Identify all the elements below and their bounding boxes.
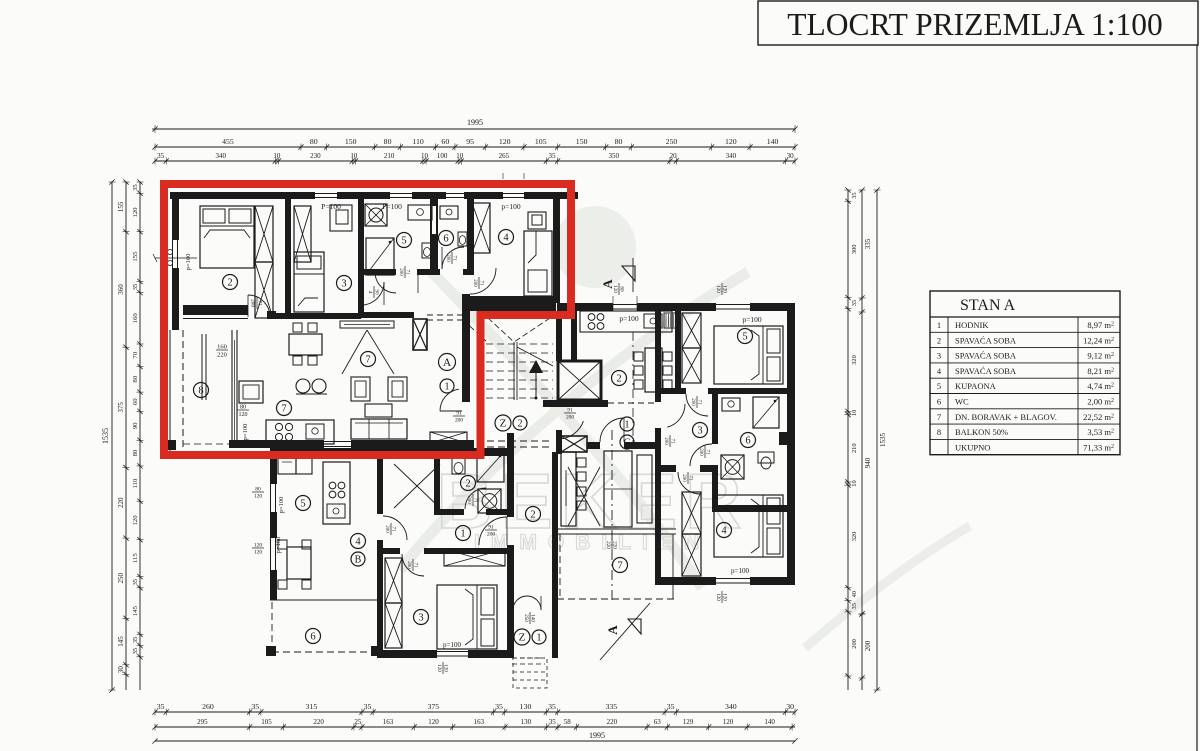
svg-text:150: 150 xyxy=(345,137,357,146)
svg-text:Z: Z xyxy=(500,418,507,430)
svg-text:320: 320 xyxy=(851,355,858,365)
svg-text:250: 250 xyxy=(523,614,529,622)
svg-text:5: 5 xyxy=(742,332,747,343)
svg-text:320: 320 xyxy=(851,532,858,542)
svg-text:220: 220 xyxy=(607,718,618,726)
svg-text:SPAVAĆA SOBA: SPAVAĆA SOBA xyxy=(955,351,1017,361)
svg-text:80: 80 xyxy=(310,137,318,146)
svg-text:200: 200 xyxy=(566,414,574,420)
svg-text:10: 10 xyxy=(350,152,358,160)
svg-text:140: 140 xyxy=(764,718,775,726)
svg-text:60: 60 xyxy=(132,398,139,405)
svg-text:35: 35 xyxy=(851,192,858,198)
svg-text:145: 145 xyxy=(117,636,125,647)
svg-text:200: 200 xyxy=(851,639,858,649)
svg-text:8: 8 xyxy=(937,427,941,437)
svg-text:160: 160 xyxy=(132,313,139,324)
svg-text:SPAVAĆA SOBA: SPAVAĆA SOBA xyxy=(955,366,1017,376)
svg-text:8,21 m2: 8,21 m2 xyxy=(1087,366,1114,376)
svg-text:71,33 m2: 71,33 m2 xyxy=(1083,442,1114,452)
svg-text:200: 200 xyxy=(445,254,450,262)
svg-text:230: 230 xyxy=(310,152,321,160)
svg-text:7: 7 xyxy=(281,404,286,415)
svg-text:129: 129 xyxy=(683,718,694,726)
svg-text:1535: 1535 xyxy=(101,428,110,444)
svg-text:P=100: P=100 xyxy=(382,202,402,211)
svg-text:2,00 m2: 2,00 m2 xyxy=(1087,397,1114,407)
svg-text:STAN A: STAN A xyxy=(960,297,1016,314)
svg-text:1995: 1995 xyxy=(467,118,483,127)
svg-text:5: 5 xyxy=(401,236,406,247)
svg-text:95: 95 xyxy=(466,137,474,146)
svg-text:58: 58 xyxy=(564,718,572,726)
svg-text:4,74 m2: 4,74 m2 xyxy=(1087,381,1114,391)
svg-text:35: 35 xyxy=(132,184,139,191)
svg-text:300: 300 xyxy=(851,245,858,255)
svg-text:35: 35 xyxy=(132,283,139,290)
svg-text:Z: Z xyxy=(519,632,526,644)
svg-text:150: 150 xyxy=(576,137,588,146)
svg-text:120: 120 xyxy=(725,137,737,146)
svg-text:6: 6 xyxy=(937,397,941,407)
svg-text:120: 120 xyxy=(428,718,439,726)
svg-text:120: 120 xyxy=(239,412,248,418)
svg-text:340: 340 xyxy=(216,152,227,160)
svg-text:120: 120 xyxy=(254,494,263,500)
svg-text:1: 1 xyxy=(937,320,941,330)
svg-text:115: 115 xyxy=(132,553,139,563)
svg-text:p=100: p=100 xyxy=(731,567,749,575)
svg-text:105: 105 xyxy=(261,718,272,726)
svg-text:35: 35 xyxy=(364,702,372,711)
svg-text:KUPAONA: KUPAONA xyxy=(955,381,997,391)
svg-text:p=100: p=100 xyxy=(443,641,461,649)
svg-text:7: 7 xyxy=(365,355,370,366)
svg-text:220: 220 xyxy=(217,352,227,359)
svg-text:7: 7 xyxy=(937,412,941,422)
svg-text:35: 35 xyxy=(157,702,165,711)
svg-text:340: 340 xyxy=(726,152,737,160)
svg-text:350: 350 xyxy=(608,152,619,160)
svg-text:3,53 m2: 3,53 m2 xyxy=(1087,427,1114,437)
svg-text:35: 35 xyxy=(851,300,858,306)
svg-text:200: 200 xyxy=(690,398,695,406)
svg-text:8,97 m2: 8,97 m2 xyxy=(1087,320,1114,330)
svg-text:120: 120 xyxy=(132,207,139,218)
svg-text:80: 80 xyxy=(132,449,139,456)
svg-text:20: 20 xyxy=(670,152,678,160)
svg-text:105: 105 xyxy=(535,137,547,146)
svg-text:35: 35 xyxy=(251,702,259,711)
svg-text:200: 200 xyxy=(455,417,463,423)
svg-text:35: 35 xyxy=(548,702,556,711)
svg-text:2: 2 xyxy=(530,510,535,521)
svg-text:80: 80 xyxy=(384,137,392,146)
svg-text:120: 120 xyxy=(132,515,139,526)
svg-text:155: 155 xyxy=(117,201,125,212)
svg-text:265: 265 xyxy=(499,152,510,160)
svg-text:35: 35 xyxy=(132,636,139,643)
svg-text:160: 160 xyxy=(217,344,227,351)
svg-text:2: 2 xyxy=(518,418,523,429)
svg-text:210: 210 xyxy=(851,443,858,453)
svg-text:10: 10 xyxy=(421,152,429,160)
svg-text:200: 200 xyxy=(681,474,686,482)
svg-text:335: 335 xyxy=(605,702,617,711)
svg-text:p=100: p=100 xyxy=(278,497,285,514)
svg-text:200: 200 xyxy=(466,496,471,504)
svg-text:295: 295 xyxy=(197,718,208,726)
svg-text:200: 200 xyxy=(472,279,477,287)
svg-text:250: 250 xyxy=(666,137,678,146)
svg-text:35: 35 xyxy=(548,152,556,160)
svg-text:200: 200 xyxy=(663,437,668,445)
svg-text:220: 220 xyxy=(605,541,611,549)
svg-text:2: 2 xyxy=(465,479,470,490)
svg-text:1995: 1995 xyxy=(589,731,605,740)
svg-text:455: 455 xyxy=(222,137,234,146)
svg-text:2: 2 xyxy=(227,278,232,289)
svg-text:p=100: p=100 xyxy=(501,202,520,211)
svg-text:110: 110 xyxy=(412,137,424,146)
svg-text:SPAVAĆA SOBA: SPAVAĆA SOBA xyxy=(955,335,1017,345)
svg-text:22,52 m2: 22,52 m2 xyxy=(1083,412,1114,422)
svg-text:163: 163 xyxy=(474,718,485,726)
svg-text:10: 10 xyxy=(456,152,464,160)
svg-text:130: 130 xyxy=(521,718,532,726)
svg-text:HODNIK: HODNIK xyxy=(955,320,989,330)
svg-text:35: 35 xyxy=(549,718,557,726)
svg-text:35: 35 xyxy=(132,578,139,585)
svg-text:A: A xyxy=(600,279,615,289)
svg-text:8: 8 xyxy=(198,386,203,397)
svg-text:9,12 m2: 9,12 m2 xyxy=(1087,351,1114,361)
svg-text:B: B xyxy=(355,554,362,565)
svg-text:30: 30 xyxy=(787,152,795,160)
svg-text:210: 210 xyxy=(384,152,395,160)
svg-text:p=100: p=100 xyxy=(242,424,249,441)
svg-text:1: 1 xyxy=(445,381,450,392)
svg-text:375: 375 xyxy=(117,402,125,413)
svg-text:p=100: p=100 xyxy=(619,314,638,323)
svg-text:200: 200 xyxy=(487,532,496,538)
svg-text:200: 200 xyxy=(864,640,872,651)
svg-text:140: 140 xyxy=(767,137,779,146)
svg-text:6: 6 xyxy=(310,632,315,643)
svg-text:12,24 m2: 12,24 m2 xyxy=(1083,335,1114,345)
svg-text:155: 155 xyxy=(132,251,139,262)
svg-text:3: 3 xyxy=(418,613,423,624)
svg-text:120: 120 xyxy=(723,718,734,726)
svg-text:220: 220 xyxy=(117,497,125,508)
svg-text:1: 1 xyxy=(625,419,630,430)
svg-text:35: 35 xyxy=(667,702,675,711)
svg-text:3: 3 xyxy=(697,426,702,437)
svg-text:WC: WC xyxy=(955,397,969,407)
svg-text:1: 1 xyxy=(460,529,465,540)
svg-text:200: 200 xyxy=(384,525,389,533)
svg-text:TLOCRT PRIZEMLJA 1:100: TLOCRT PRIZEMLJA 1:100 xyxy=(787,7,1163,42)
svg-text:340: 340 xyxy=(725,702,737,711)
svg-text:315: 315 xyxy=(306,702,318,711)
svg-text:A: A xyxy=(605,625,620,635)
svg-text:30: 30 xyxy=(117,666,125,674)
svg-text:100: 100 xyxy=(437,152,448,160)
svg-text:7: 7 xyxy=(617,561,622,572)
svg-text:335: 335 xyxy=(864,238,872,249)
svg-text:250: 250 xyxy=(117,572,125,583)
svg-text:200: 200 xyxy=(398,268,403,276)
svg-text:360: 360 xyxy=(117,284,125,295)
svg-text:10: 10 xyxy=(851,480,858,486)
svg-text:BALKON 50%: BALKON 50% xyxy=(955,427,1008,437)
svg-text:4: 4 xyxy=(503,233,509,244)
svg-text:120: 120 xyxy=(436,664,442,672)
svg-text:35: 35 xyxy=(851,603,858,609)
svg-text:80: 80 xyxy=(615,137,623,146)
svg-text:DN. BORAVAK + BLAGOV.: DN. BORAVAK + BLAGOV. xyxy=(955,412,1057,422)
svg-text:1: 1 xyxy=(537,632,542,643)
svg-text:4: 4 xyxy=(355,537,361,548)
svg-text:10: 10 xyxy=(851,410,858,416)
svg-text:p=100: p=100 xyxy=(742,315,761,324)
svg-text:2: 2 xyxy=(937,335,941,345)
svg-text:2: 2 xyxy=(616,374,621,385)
svg-text:4: 4 xyxy=(721,526,727,537)
svg-text:163: 163 xyxy=(383,718,394,726)
svg-text:260: 260 xyxy=(202,702,214,711)
svg-text:120: 120 xyxy=(254,550,263,556)
svg-text:5: 5 xyxy=(937,381,941,391)
svg-text:4: 4 xyxy=(367,291,372,294)
svg-text:200: 200 xyxy=(406,561,411,569)
svg-text:90: 90 xyxy=(132,422,139,429)
svg-text:4: 4 xyxy=(937,366,942,376)
svg-text:p=100: p=100 xyxy=(185,254,192,271)
svg-text:220: 220 xyxy=(313,718,324,726)
svg-text:30: 30 xyxy=(786,702,794,711)
svg-text:130: 130 xyxy=(520,702,532,711)
svg-text:25: 25 xyxy=(354,718,362,726)
svg-text:5: 5 xyxy=(300,499,305,510)
svg-text:145: 145 xyxy=(132,605,139,616)
svg-text:1535: 1535 xyxy=(879,433,887,448)
svg-text:110: 110 xyxy=(132,478,139,488)
svg-text:10: 10 xyxy=(273,152,281,160)
svg-text:120: 120 xyxy=(499,137,511,146)
svg-text:P=100: P=100 xyxy=(321,202,341,211)
svg-text:40: 40 xyxy=(851,591,858,597)
svg-text:35: 35 xyxy=(495,702,503,711)
svg-text:200: 200 xyxy=(698,448,703,456)
svg-text:35: 35 xyxy=(157,152,165,160)
svg-text:35: 35 xyxy=(132,647,139,654)
svg-text:120: 120 xyxy=(715,593,721,601)
svg-text:60: 60 xyxy=(441,137,449,146)
svg-text:UKUPNO: UKUPNO xyxy=(955,442,990,452)
svg-text:63: 63 xyxy=(654,718,662,726)
svg-text:A: A xyxy=(443,357,452,369)
svg-text:3: 3 xyxy=(937,351,941,361)
svg-text:6: 6 xyxy=(443,234,448,245)
svg-text:120: 120 xyxy=(715,285,721,293)
svg-text:940: 940 xyxy=(864,457,872,468)
svg-text:80: 80 xyxy=(132,375,139,382)
svg-text:6: 6 xyxy=(745,436,750,447)
svg-text:70: 70 xyxy=(132,351,139,358)
svg-text:375: 375 xyxy=(427,702,439,711)
svg-text:3: 3 xyxy=(341,279,346,290)
